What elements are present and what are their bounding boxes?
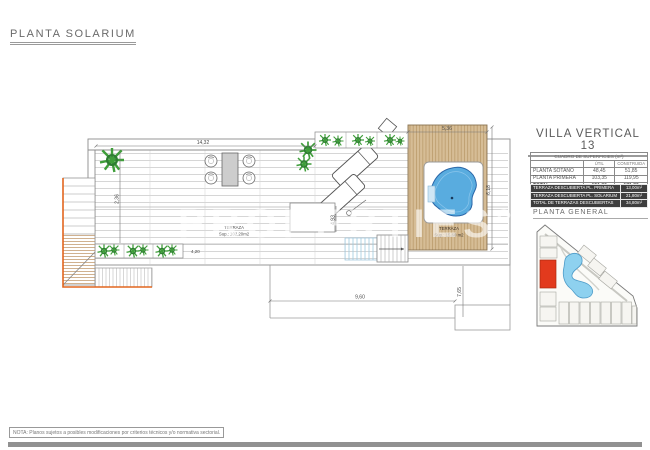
label-terraza-main: TERRAZA xyxy=(224,225,244,230)
table-row: TERRAZA DESCUBIERTA PL. SOLARIUM 21,80m² xyxy=(531,192,648,200)
site-plan xyxy=(533,222,648,332)
dim-deck-right: 6,18 xyxy=(486,185,492,195)
site-plan-label: PLANTA GENERAL xyxy=(533,209,648,219)
table-row: TOTAL DE TERRAZAS DESCUBIERTAS 34,80m² xyxy=(531,200,648,208)
glass-roof-strip xyxy=(345,238,377,260)
dim-top: 14,32 xyxy=(197,140,210,146)
dim-mid-vert: 4,93 xyxy=(331,215,337,225)
col-construida: CONSTRUIDA xyxy=(615,160,648,168)
label-terraza-deck: TERRAZA xyxy=(439,226,459,231)
label-terraza-deck-area: Sup.: 15,60 m2 xyxy=(434,233,464,238)
jacuzzi xyxy=(424,162,483,223)
bottom-bar xyxy=(8,442,642,447)
dim-planter: 4,20 xyxy=(191,249,200,254)
highlighted-plot xyxy=(540,260,556,288)
top-planter-row xyxy=(315,132,408,148)
dim-left-vert: 2,36 xyxy=(115,194,121,204)
drawing-sheet: PLANTA SOLARIUM xyxy=(0,0,650,450)
skylight-box xyxy=(290,203,335,232)
table-row: TERRAZA DESCUBIERTA PL. PRIMERA 13,00m² xyxy=(531,185,648,193)
label-terraza-main-area: Sup.: 102,20m2 xyxy=(219,232,250,237)
table-row: PLANTA SOTANO 48,45 51,85 xyxy=(531,168,648,176)
terraces-table: TERRAZA DESCUBIERTA PL. PRIMERA 13,00m² … xyxy=(530,184,648,208)
table-row: PLANTA PRIMERA 103,35 119,95 xyxy=(531,175,648,183)
dim-bottom: 9,60 xyxy=(355,295,365,301)
dim-deck-top: 5,36 xyxy=(442,126,452,132)
surfaces-table-title: CUADRO DE SUPERFICIES (m²) xyxy=(531,153,648,161)
note: NOTA: Planos sujetos a posibles modifica… xyxy=(9,427,224,438)
dim-bottom-right: 7,65 xyxy=(457,287,463,297)
bottom-shrub-row xyxy=(95,244,183,258)
col-util: ÚTIL xyxy=(584,160,615,168)
